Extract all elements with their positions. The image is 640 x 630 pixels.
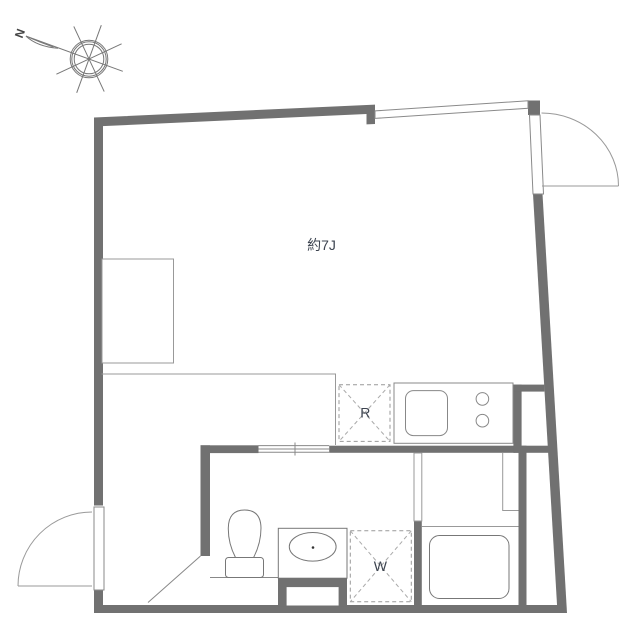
- svg-text:W: W: [374, 558, 388, 574]
- svg-text:約7J: 約7J: [307, 237, 336, 253]
- svg-text:R: R: [360, 404, 370, 420]
